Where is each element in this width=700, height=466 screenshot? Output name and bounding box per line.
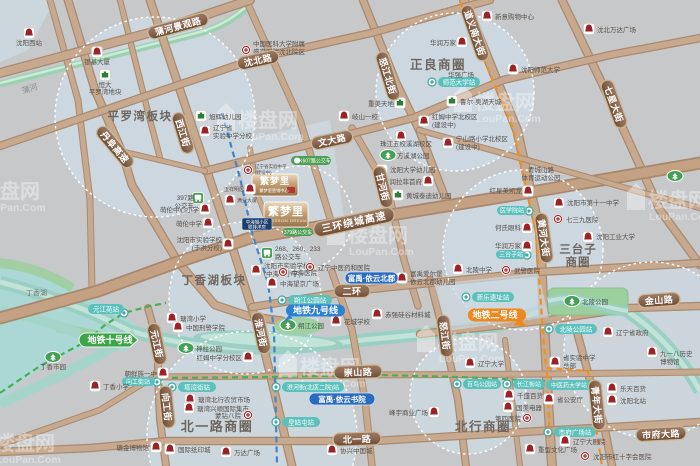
- svg-text:地铁九号线: 地铁九号线: [293, 305, 338, 316]
- svg-text:中海医院: 中海医院: [291, 268, 318, 277]
- svg-text:红姆中学分校区: 红姆中学分校区: [197, 353, 243, 362]
- svg-text:辽宁中医药和医院: 辽宁中医药和医院: [318, 263, 371, 272]
- svg-text:黄城泰迪幼儿园: 黄城泰迪幼儿园: [406, 191, 452, 200]
- svg-text:方溪湖公园: 方溪湖公园: [397, 151, 430, 160]
- svg-text:379路公交车: 379路公交车: [284, 229, 312, 236]
- svg-text:北一路商圈: 北一路商圈: [181, 419, 254, 434]
- svg-text:二环: 二环: [342, 287, 361, 297]
- svg-text:崇山路: 崇山路: [344, 366, 373, 378]
- svg-text:华润万家: 华润万家: [430, 38, 457, 47]
- svg-text:国美电器: 国美电器: [516, 403, 543, 412]
- svg-text:华强广场: 华强广场: [448, 70, 475, 79]
- svg-text:中医药大学站: 中医药大学站: [551, 382, 587, 390]
- svg-text:银基大厦: 银基大厦: [84, 57, 111, 66]
- svg-text:鲁尔·奥湖天城: 鲁尔·奥湖天城: [460, 97, 502, 106]
- svg-text:商圈: 商圈: [566, 255, 591, 269]
- svg-text:满业大厦: 满业大厦: [237, 197, 257, 204]
- svg-text:朝鲜族一中: 朝鲜族一中: [125, 369, 158, 378]
- svg-text:辽宁省: 辽宁省: [213, 123, 233, 132]
- svg-text:红姆中学北校区: 红姆中学北校区: [432, 112, 478, 121]
- svg-text:依云北郡幼儿园: 依云北郡幼儿园: [410, 277, 456, 286]
- svg-text:辽宁省实验中学: 辽宁省实验中学: [255, 163, 287, 170]
- svg-text:金山路: 金山路: [643, 293, 674, 306]
- svg-text:市府广场站: 市府广场站: [559, 428, 592, 437]
- svg-text:省实验中学: 省实验中学: [563, 353, 596, 362]
- svg-text:(建设中): (建设中): [255, 169, 272, 176]
- svg-text:蒙钻八院: 蒙钻八院: [215, 411, 242, 420]
- svg-text:塔湾街站: 塔湾街站: [184, 383, 211, 392]
- svg-text:体育运动公园: 体育运动公园: [522, 173, 561, 182]
- svg-text:向工街站: 向工街站: [126, 378, 150, 386]
- svg-text:富禹爱尔堡: 富禹爱尔堡: [410, 269, 443, 278]
- svg-text:珠江五校溪湖校区: 珠江五校溪湖校区: [380, 139, 433, 148]
- svg-text:武警医院: 武警医院: [514, 266, 541, 275]
- svg-text:国际纸印城: 国际纸印城: [178, 445, 211, 454]
- svg-text:瑭湾小学: 瑭湾小学: [180, 314, 207, 323]
- svg-text:辽宁省政府: 辽宁省政府: [616, 328, 649, 337]
- svg-text:地铁十号线: 地铁十号线: [87, 334, 132, 345]
- svg-text:丁香湖板块: 丁香湖板块: [182, 273, 247, 287]
- svg-text:富禹·依云书院: 富禹·依云书院: [318, 394, 366, 404]
- svg-text:(于洪分校): (于洪分校): [192, 243, 222, 252]
- svg-text:丁香小学: 丁香小学: [103, 382, 130, 391]
- svg-text:路公交车: 路公交车: [275, 252, 302, 261]
- svg-text:协兴中国城: 协兴中国城: [340, 446, 373, 455]
- svg-text:(建设中): (建设中): [432, 120, 456, 129]
- svg-text:繁梦里: 繁梦里: [259, 175, 290, 186]
- svg-text:K607路公交车: K607路公交车: [299, 158, 331, 165]
- svg-text:地铁二号线: 地铁二号线: [472, 309, 517, 320]
- svg-text:丁香市园: 丁香市园: [40, 362, 66, 371]
- svg-text:朔江公园: 朔江公园: [298, 321, 324, 330]
- svg-text:397路: 397路: [177, 193, 195, 202]
- svg-text:实验中学分校: 实验中学分校: [213, 131, 253, 140]
- svg-text:省公安厅: 省公安厅: [557, 395, 584, 404]
- svg-text:富禹·依云北郡: 富禹·依云北郡: [348, 273, 396, 283]
- svg-text:辽宁大剧院: 辽宁大剧院: [573, 437, 606, 446]
- svg-text:朔江公园站: 朔江公园站: [294, 296, 327, 305]
- svg-text:沈阳市实验学校: 沈阳市实验学校: [177, 235, 223, 244]
- svg-text:博物馆: 博物馆: [660, 357, 680, 366]
- svg-text:恒大: 恒大: [99, 80, 113, 89]
- svg-text:辽宁大学: 辽宁大学: [478, 359, 505, 368]
- svg-text:萌伦中学: 萌伦中学: [176, 219, 203, 228]
- svg-text:繁梦里: 繁梦里: [267, 204, 304, 218]
- svg-text:岐山一校: 岐山一校: [352, 112, 379, 121]
- svg-text:繁梦里营销中心: 繁梦里营销中心: [259, 187, 289, 194]
- svg-text:神柱公园: 神柱公园: [196, 344, 222, 353]
- svg-text:中国医科大学附属: 中国医科大学附属: [253, 39, 305, 48]
- svg-text:乐天百货: 乐天百货: [620, 384, 647, 393]
- svg-text:长江街站: 长江街站: [517, 381, 541, 389]
- svg-text:三台子: 三台子: [559, 242, 597, 256]
- svg-text:重型文化广场: 重型文化广场: [538, 445, 578, 454]
- svg-text:市府大路: 市府大路: [642, 427, 681, 440]
- svg-text:千盛百货: 千盛百货: [517, 391, 544, 400]
- svg-text:新乐遗址站: 新乐遗址站: [477, 293, 510, 302]
- svg-text:北陵公园站: 北陵公园站: [560, 325, 593, 334]
- svg-text:萌伦中心小学: 萌伦中心小学: [160, 205, 200, 214]
- svg-text:新意购物中心: 新意购物中心: [495, 12, 535, 21]
- svg-text:何氏眼科: 何氏眼科: [495, 223, 522, 232]
- svg-text:旭辉幼儿园: 旭辉幼儿园: [209, 112, 242, 121]
- svg-text:青城山路: 青城山路: [528, 165, 555, 174]
- svg-text:平罗湾地块: 平罗湾地块: [89, 87, 122, 96]
- svg-text:沈阳师范大学: 沈阳师范大学: [521, 65, 561, 74]
- svg-text:玉祥明居: 玉祥明居: [224, 186, 244, 193]
- svg-text:华润万家: 华润万家: [495, 241, 522, 250]
- svg-text:峰宇商业广场: 峰宇商业广场: [389, 408, 429, 417]
- svg-text:元江苑站: 元江苑站: [93, 305, 120, 314]
- svg-text:宁山路小学北校区: 宁山路小学北校区: [456, 134, 509, 143]
- svg-text:瑭金博物馆: 瑭金博物馆: [117, 443, 150, 452]
- svg-text:沈阳西站: 沈阳西站: [16, 38, 43, 47]
- svg-text:医学院站: 医学院站: [500, 207, 524, 215]
- svg-text:268、260、233: 268、260、233: [275, 246, 321, 253]
- svg-text:瑭湾兴顺国际集市: 瑭湾兴顺国际集市: [197, 404, 250, 413]
- svg-text:三台子站: 三台子站: [499, 251, 523, 259]
- svg-text:正良商圈: 正良商圈: [410, 57, 466, 72]
- svg-text:重美天地: 重美天地: [368, 99, 395, 108]
- svg-text:沈北万达广场: 沈北万达广场: [597, 25, 637, 34]
- svg-text:皇姑屯站: 皇姑屯站: [288, 418, 315, 427]
- svg-text:沈阳北站: 沈阳北站: [620, 396, 647, 405]
- svg-text:沈阳市红十字会医院: 沈阳市红十字会医院: [593, 452, 652, 461]
- svg-text:沈阳市第十一中学: 沈阳市第十一中学: [567, 198, 620, 207]
- svg-text:总部: 总部: [563, 361, 577, 370]
- svg-text:(建设中): (建设中): [456, 142, 480, 151]
- svg-text:中海望京广场: 中海望京广场: [280, 279, 320, 288]
- svg-text:中国刑警学院: 中国刑警学院: [186, 323, 226, 332]
- svg-text:平罗湾板块: 平罗湾板块: [108, 109, 173, 123]
- svg-text:丁香湖: 丁香湖: [26, 288, 47, 297]
- svg-text:百鸟公园站: 百鸟公园站: [467, 381, 497, 389]
- svg-text:赤强硅谷材料城: 赤强硅谷材料城: [385, 310, 431, 319]
- svg-text:沈阳工业大学: 沈阳工业大学: [596, 232, 636, 241]
- svg-text:红星美凯龙: 红星美凯龙: [490, 186, 523, 195]
- svg-text:七三九医院: 七三九医院: [566, 215, 599, 224]
- svg-text:万达广场: 万达广场: [234, 448, 261, 457]
- svg-text:第四医院: 第四医院: [495, 414, 522, 423]
- svg-text:淮河街(北医二院)站: 淮河街(北医二院)站: [287, 384, 339, 392]
- svg-text:九一八历史: 九一八历史: [660, 349, 693, 358]
- svg-text:沈阳大学幼儿园: 沈阳大学幼儿园: [390, 165, 436, 174]
- svg-text:花城学校: 花城学校: [344, 317, 371, 326]
- svg-text:北陵中学: 北陵中学: [466, 265, 493, 274]
- svg-text:联排洋房: 联排洋房: [248, 224, 266, 231]
- svg-text:瑭湾北行农贸市场: 瑭湾北行农贸市场: [198, 395, 251, 404]
- svg-text:北陵公园: 北陵公园: [582, 297, 608, 306]
- svg-text:北一路: 北一路: [343, 433, 372, 445]
